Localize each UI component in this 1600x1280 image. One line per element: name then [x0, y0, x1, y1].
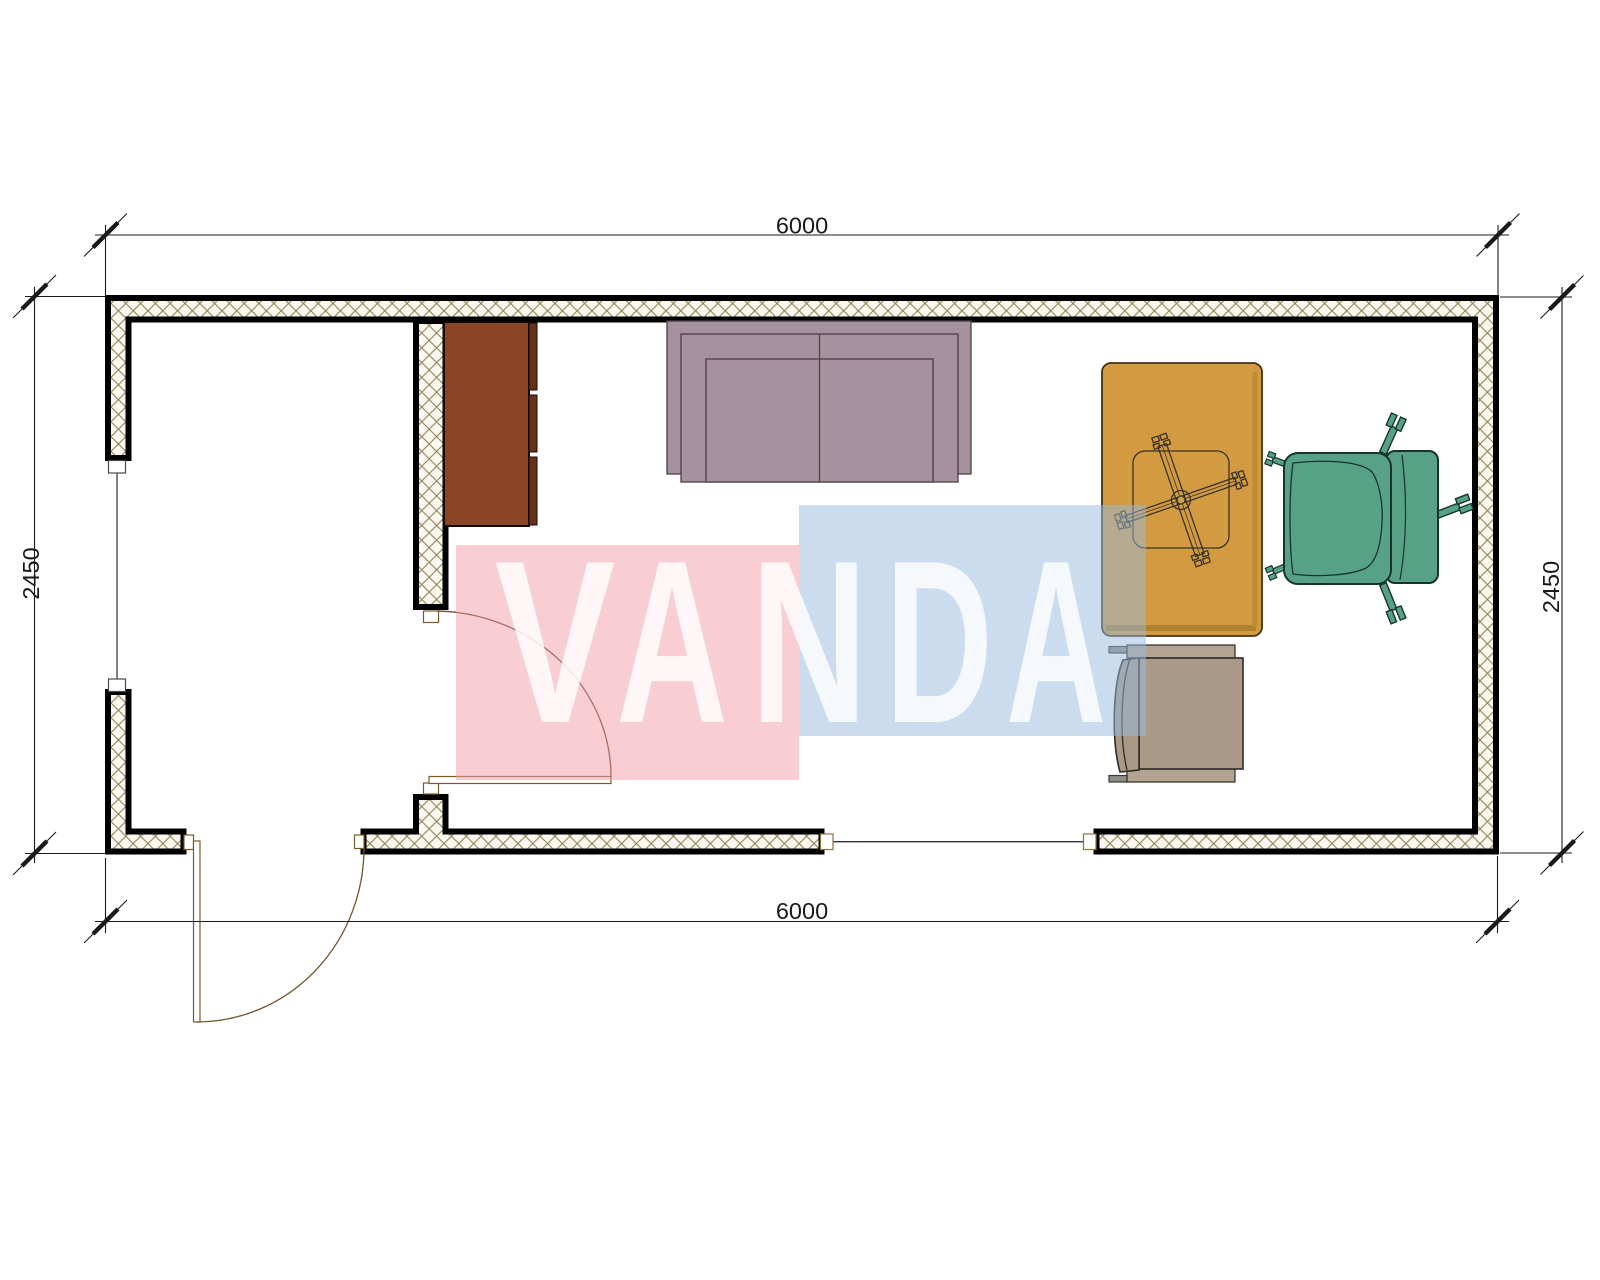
svg-text:2450: 2450: [1538, 561, 1564, 613]
svg-text:2450: 2450: [18, 547, 44, 599]
svg-text:N: N: [751, 513, 868, 772]
svg-text:A: A: [616, 513, 728, 772]
svg-text:V: V: [495, 513, 616, 772]
svg-text:A: A: [1006, 513, 1106, 772]
svg-text:6000: 6000: [776, 213, 828, 239]
svg-text:D: D: [885, 513, 993, 772]
svg-text:6000: 6000: [776, 898, 828, 924]
